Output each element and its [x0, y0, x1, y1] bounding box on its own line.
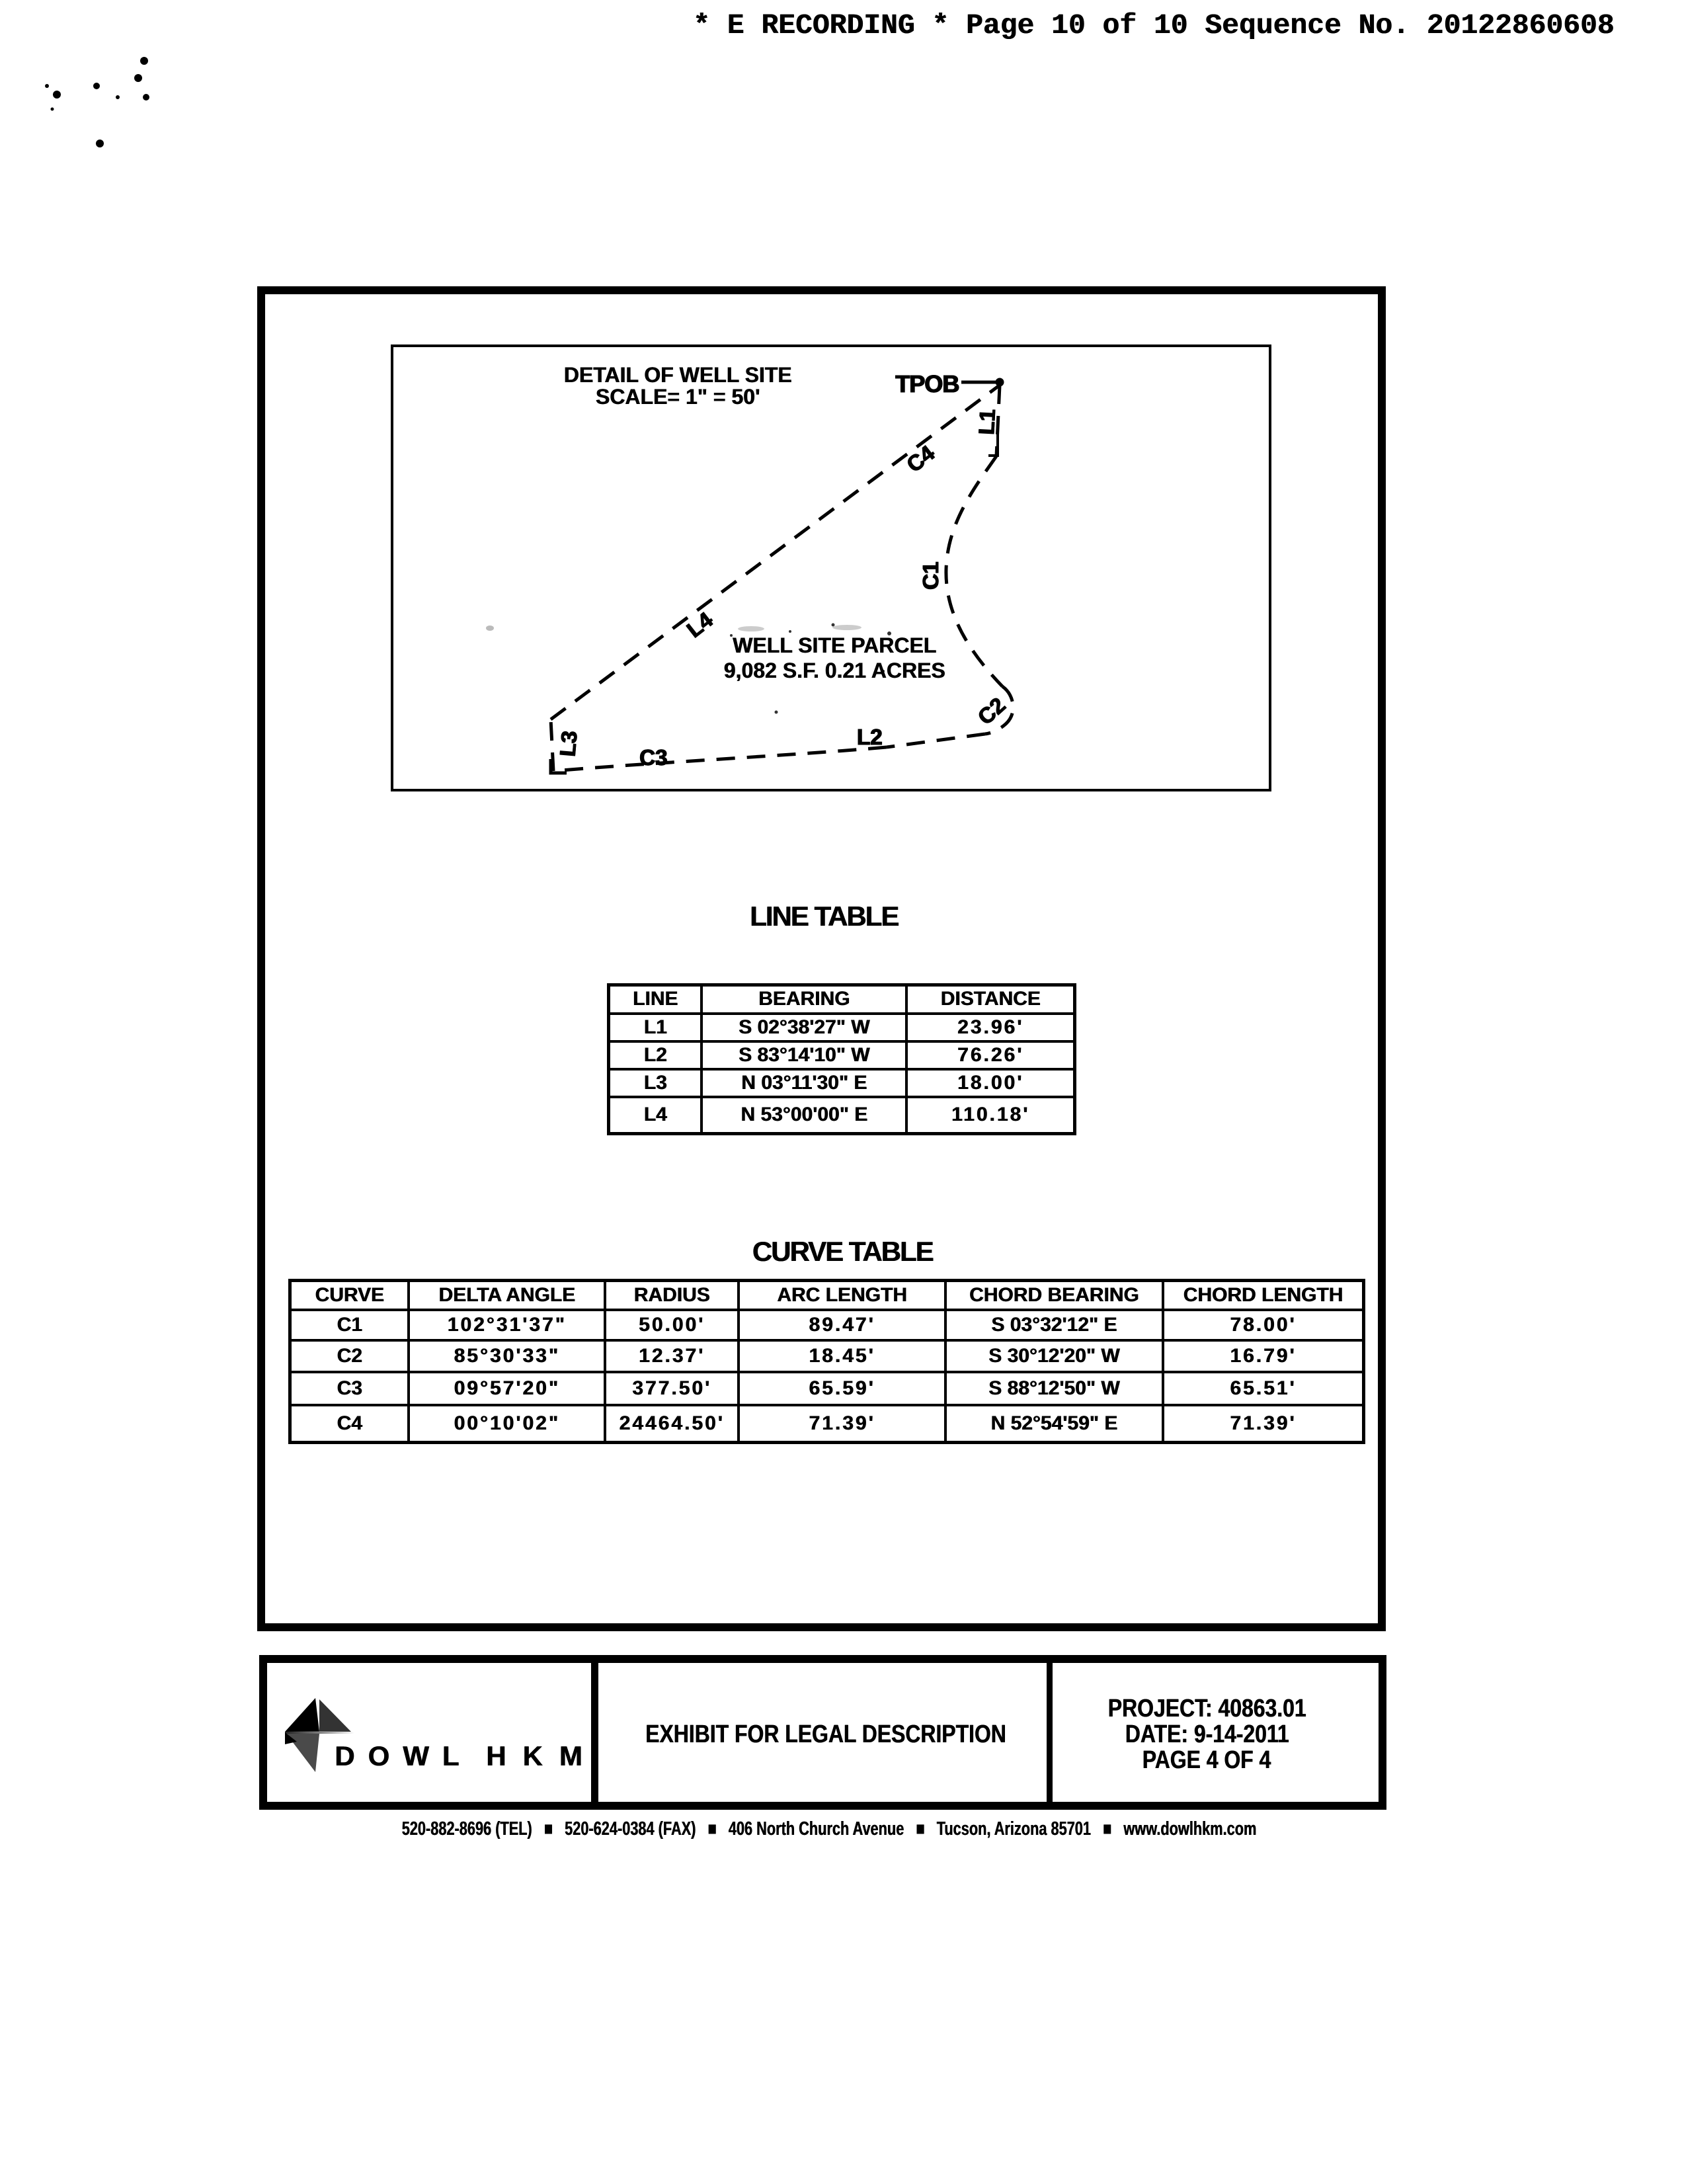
svg-text:L3: L3 [555, 730, 581, 758]
svg-text:L1: L1 [974, 409, 1000, 435]
svg-text:C3: C3 [639, 745, 667, 770]
svg-text:TPOB: TPOB [895, 370, 959, 397]
svg-text:L2: L2 [857, 725, 883, 749]
svg-text:C1: C1 [918, 562, 943, 590]
svg-text:C4: C4 [902, 440, 940, 477]
